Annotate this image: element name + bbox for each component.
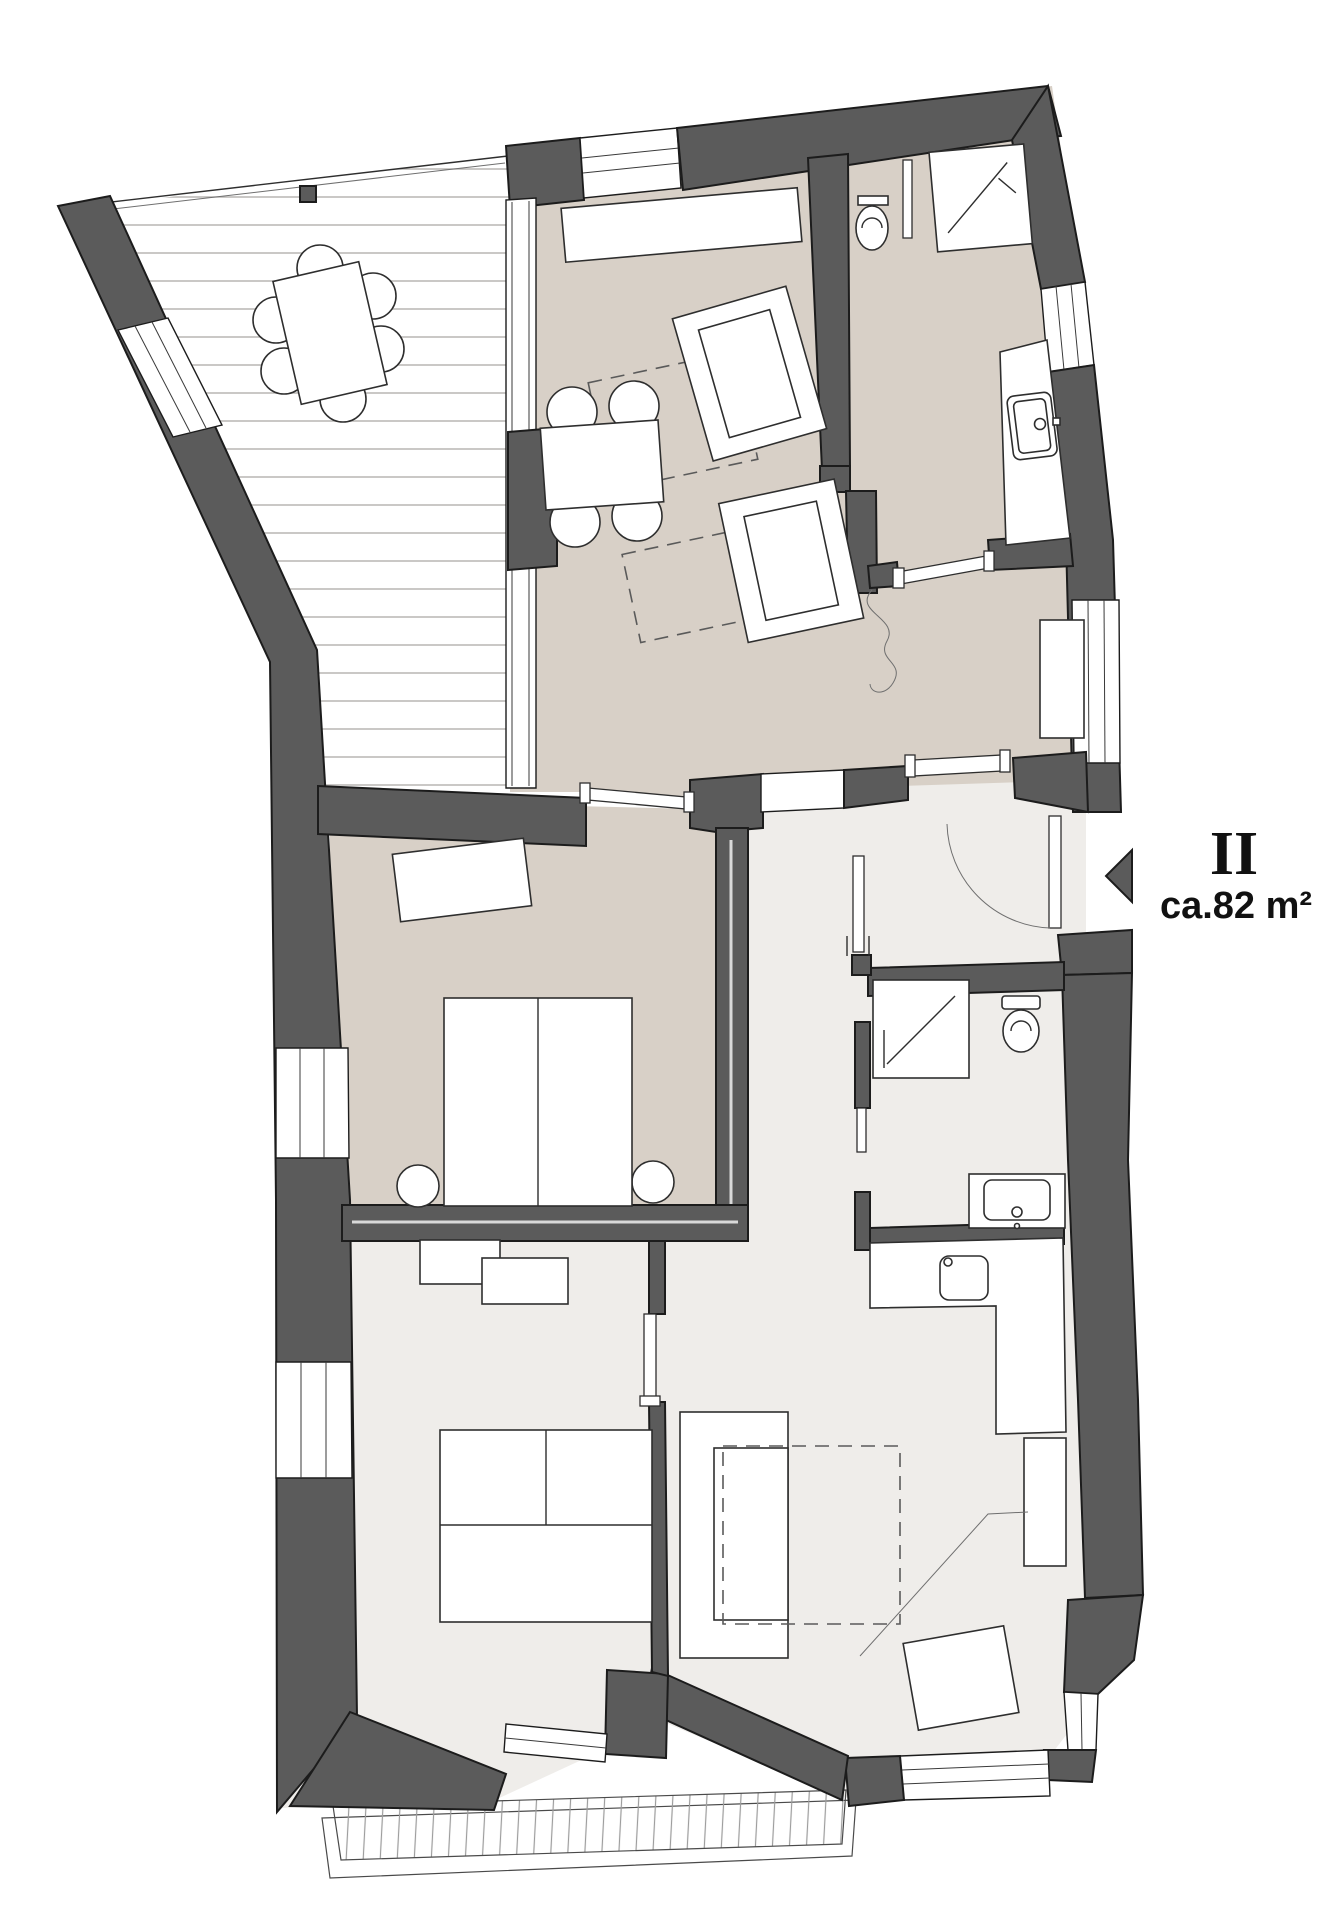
left-window-3 <box>276 1362 352 1478</box>
hall-wardrobe <box>1040 620 1084 738</box>
bedside-stool <box>632 1161 674 1203</box>
shower-top <box>929 144 1032 252</box>
bottom-divider-block <box>605 1670 668 1758</box>
toilet-top <box>856 196 888 250</box>
bedside-stool <box>397 1165 439 1207</box>
bottom-corner-pier <box>1044 1750 1096 1782</box>
room3-table <box>903 1626 1019 1730</box>
bottom-right-window <box>1064 1692 1098 1750</box>
hall-slider-pier <box>852 955 871 975</box>
unit-annotation: II ca.82 m² <box>1106 820 1312 927</box>
kitchen-sink <box>1006 392 1057 461</box>
terrace-corner-block <box>506 138 584 208</box>
shower-room-sliding-door <box>857 1108 866 1152</box>
bedroom2-divider-upper <box>649 1241 665 1314</box>
unit-area-label: ca.82 m² <box>1160 885 1312 927</box>
top-window <box>580 128 681 198</box>
floor-plan-drawing: II ca.82 m² <box>0 0 1344 1920</box>
toilet-center <box>1002 996 1040 1052</box>
unit-number-label: II <box>1210 820 1258 888</box>
sofa <box>680 1412 788 1658</box>
bedroom2-dresser-2 <box>482 1258 568 1304</box>
kitchenette-faucet <box>944 1258 952 1266</box>
bath-partition <box>903 160 912 238</box>
left-window-2 <box>276 1048 349 1158</box>
bottom-right-corner-block <box>1064 1595 1143 1694</box>
shower-room-slider-track <box>855 1022 870 1108</box>
kitchen-faucet <box>1035 419 1046 430</box>
entry-jamb-block <box>1058 930 1132 975</box>
terrace-planter <box>300 186 316 202</box>
kitchen-tap-detail <box>1053 418 1060 425</box>
floor-plan-canvas: II ca.82 m² <box>0 0 1344 1920</box>
mid-wall-pier <box>690 774 763 832</box>
room3-wardrobe <box>1024 1438 1066 1566</box>
shower-room-bottom-stub <box>855 1192 870 1250</box>
bottom-window <box>900 1750 1050 1800</box>
mid-wall-niche <box>761 770 844 812</box>
mid-wall-right <box>844 766 908 808</box>
bottom-window-pier <box>845 1756 904 1806</box>
dining-table <box>540 420 663 510</box>
entry-arrow-icon <box>1106 850 1132 902</box>
washbasin <box>969 1174 1065 1229</box>
